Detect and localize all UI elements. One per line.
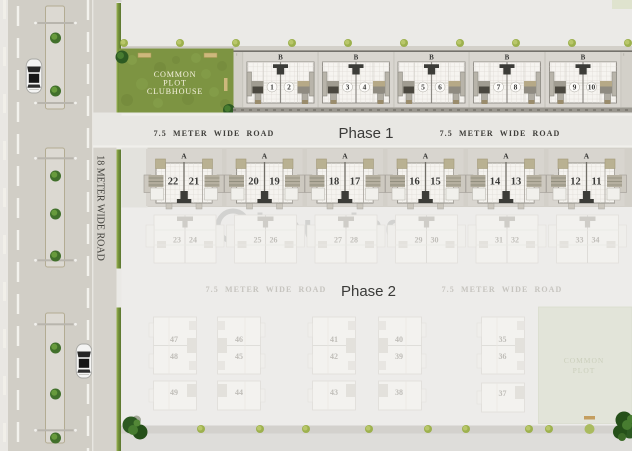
svg-text:29: 29 [415,236,423,245]
svg-text:43: 43 [330,388,338,397]
svg-text:A: A [584,152,590,161]
svg-text:28: 28 [350,236,358,245]
svg-text:B: B [278,54,283,62]
svg-text:7.5 METER WIDE ROAD: 7.5 METER WIDE ROAD [440,129,561,138]
svg-text:33: 33 [576,236,584,245]
svg-text:11: 11 [592,177,602,188]
svg-text:26: 26 [270,236,278,245]
svg-text:12: 12 [570,177,581,188]
svg-text:CLUBHOUSE: CLUBHOUSE [147,87,203,96]
svg-text:49: 49 [170,388,178,397]
svg-text:31: 31 [495,236,503,245]
svg-text:A: A [262,152,268,161]
svg-text:1: 1 [270,83,274,92]
svg-text:47: 47 [170,335,178,344]
svg-text:42: 42 [330,352,338,361]
svg-text:B: B [581,54,586,62]
svg-text:A: A [181,152,187,161]
svg-text:37: 37 [499,389,507,398]
svg-text:A: A [423,152,429,161]
svg-text:A: A [503,152,509,161]
svg-text:4: 4 [363,83,367,92]
svg-text:B: B [429,54,434,62]
svg-text:23: 23 [173,236,181,245]
svg-text:38: 38 [395,388,403,397]
svg-text:20: 20 [248,177,259,188]
svg-text:6: 6 [438,83,442,92]
svg-text:COMMON: COMMON [564,356,605,365]
svg-text:44: 44 [235,388,243,397]
svg-text:24: 24 [189,236,197,245]
svg-text:46: 46 [235,335,243,344]
svg-text:22: 22 [168,177,179,188]
svg-text:27: 27 [334,236,342,245]
svg-text:21: 21 [189,177,200,188]
svg-text:PLOT: PLOT [573,366,596,375]
svg-text:13: 13 [511,177,522,188]
svg-text:39: 39 [395,352,403,361]
svg-text:41: 41 [330,335,338,344]
svg-text:36: 36 [499,352,507,361]
svg-text:Phase 1: Phase 1 [338,125,393,142]
svg-text:2: 2 [287,83,291,92]
svg-text:14: 14 [490,177,501,188]
svg-text:25: 25 [254,236,262,245]
svg-text:10: 10 [588,83,596,92]
svg-text:7.5 METER WIDE ROAD: 7.5 METER WIDE ROAD [442,285,563,294]
svg-text:B: B [354,54,359,62]
svg-text:9: 9 [573,83,577,92]
svg-text:34: 34 [592,236,600,245]
svg-text:7: 7 [497,83,501,92]
svg-text:35: 35 [499,335,507,344]
svg-text:8: 8 [514,83,518,92]
svg-text:7.5 METER WIDE ROAD: 7.5 METER WIDE ROAD [206,285,327,294]
svg-text:3: 3 [346,83,350,92]
svg-text:16: 16 [409,177,420,188]
svg-text:40: 40 [395,335,403,344]
svg-text:18 METER WIDE ROAD: 18 METER WIDE ROAD [95,155,106,261]
svg-text:15: 15 [430,177,441,188]
svg-text:5: 5 [421,83,425,92]
svg-text:17: 17 [350,177,361,188]
svg-text:18: 18 [329,177,340,188]
svg-text:Phase 2: Phase 2 [341,283,396,300]
svg-text:30: 30 [431,236,439,245]
svg-text:7.5 METER WIDE ROAD: 7.5 METER WIDE ROAD [154,129,275,138]
svg-text:45: 45 [235,352,243,361]
svg-text:A: A [342,152,348,161]
svg-text:19: 19 [269,177,280,188]
svg-text:32: 32 [511,236,519,245]
svg-text:48: 48 [170,352,178,361]
svg-text:B: B [505,54,510,62]
